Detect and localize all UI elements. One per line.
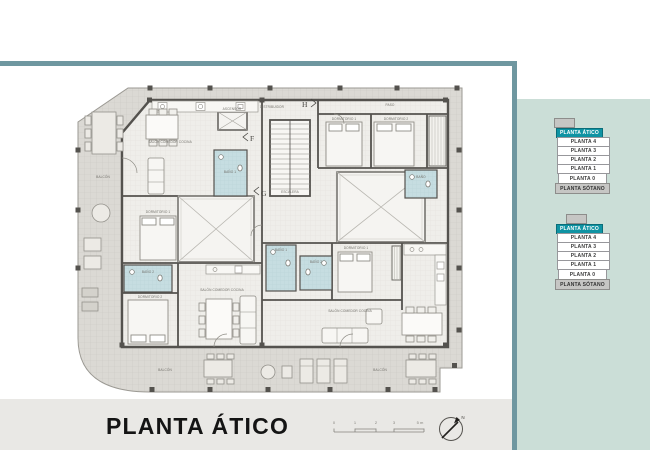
section-markers: F G H bbox=[243, 99, 316, 198]
hob-icon bbox=[161, 105, 165, 109]
sink-icon bbox=[198, 104, 202, 108]
section-marker-h: H bbox=[302, 100, 308, 109]
room-label-paso: PASO bbox=[385, 103, 394, 107]
page: PLANTA ÁTICO bbox=[0, 0, 650, 450]
room-label-dorm-tr1: DORMITORIO 1 bbox=[332, 117, 357, 121]
elevator bbox=[218, 112, 247, 130]
staircase bbox=[270, 120, 310, 196]
room-label-dorm-tr2: DORMITORIO 2 bbox=[384, 117, 409, 121]
void-left bbox=[178, 196, 254, 262]
columns bbox=[76, 86, 462, 393]
kitchens bbox=[152, 101, 446, 305]
bath-fixtures bbox=[130, 155, 431, 281]
terrace-furniture bbox=[82, 112, 436, 384]
living-furniture bbox=[146, 109, 442, 344]
beds bbox=[128, 122, 414, 344]
room-label-bano-tr: BAÑO bbox=[416, 174, 426, 179]
room-label-salon-tl: SALÓN COMEDOR COCINA bbox=[148, 139, 192, 144]
frame-line-top bbox=[0, 61, 517, 66]
room-label-dorm-tl: DORMITORIO 1 bbox=[146, 210, 171, 214]
room-label-bano-bl: BAÑO 2 bbox=[142, 269, 154, 274]
section-marker-f: F bbox=[250, 134, 254, 143]
room-label-salon-br: SALÓN COMEDOR COCINA bbox=[328, 308, 372, 313]
room-label-balcon-bl: BALCÓN bbox=[158, 367, 172, 372]
doors bbox=[122, 114, 353, 347]
floor-selector-bottom: PLANTA ÁTICO PLANTA 4 PLANTA 3 PLANTA 2 … bbox=[553, 214, 615, 290]
floor-option-sotano-b[interactable]: PLANTA SÓTANO bbox=[555, 279, 610, 290]
terrace bbox=[78, 88, 462, 392]
roof-tab bbox=[554, 118, 575, 128]
room-label-ascensor: ASCENSOR bbox=[223, 107, 242, 111]
room-label-distribuidor: DISTRIBUIDOR bbox=[260, 105, 285, 109]
room-label-escalera: ESCALERA bbox=[281, 190, 300, 194]
room-labels: BALCÓN SALÓN COMEDOR COCINA DORMITORIO 1… bbox=[96, 103, 426, 372]
roof-tab bbox=[566, 214, 587, 224]
page-title: PLANTA ÁTICO bbox=[106, 413, 289, 440]
section-marker-g: G bbox=[261, 189, 267, 198]
room-label-bano-tl: BAÑO 1 bbox=[224, 169, 236, 174]
frame-line-right bbox=[512, 61, 517, 450]
room-label-bano-br2: BAÑO 2 bbox=[310, 259, 322, 264]
room-label-dorm-bl: DORMITORIO 2 bbox=[138, 295, 163, 299]
room-label-balcon-left: BALCÓN bbox=[96, 174, 110, 179]
floor-option-sotano-a[interactable]: PLANTA SÓTANO bbox=[555, 183, 610, 194]
bathrooms bbox=[124, 150, 437, 292]
interior-walls bbox=[122, 100, 448, 347]
oven-icon bbox=[238, 105, 243, 109]
void-right bbox=[337, 172, 425, 242]
room-label-dorm-br: DORMITORIO 1 bbox=[344, 246, 369, 250]
floor-selector-top: PLANTA ÁTICO PLANTA 4 PLANTA 3 PLANTA 2 … bbox=[553, 118, 615, 194]
building bbox=[122, 100, 448, 347]
wardrobes bbox=[392, 116, 446, 280]
room-label-salon-bl: SALÓN COMEDOR COCINA bbox=[200, 287, 244, 292]
room-label-bano-br1: BAÑO 1 bbox=[275, 247, 287, 252]
room-label-balcon-br: BALCÓN bbox=[373, 367, 387, 372]
